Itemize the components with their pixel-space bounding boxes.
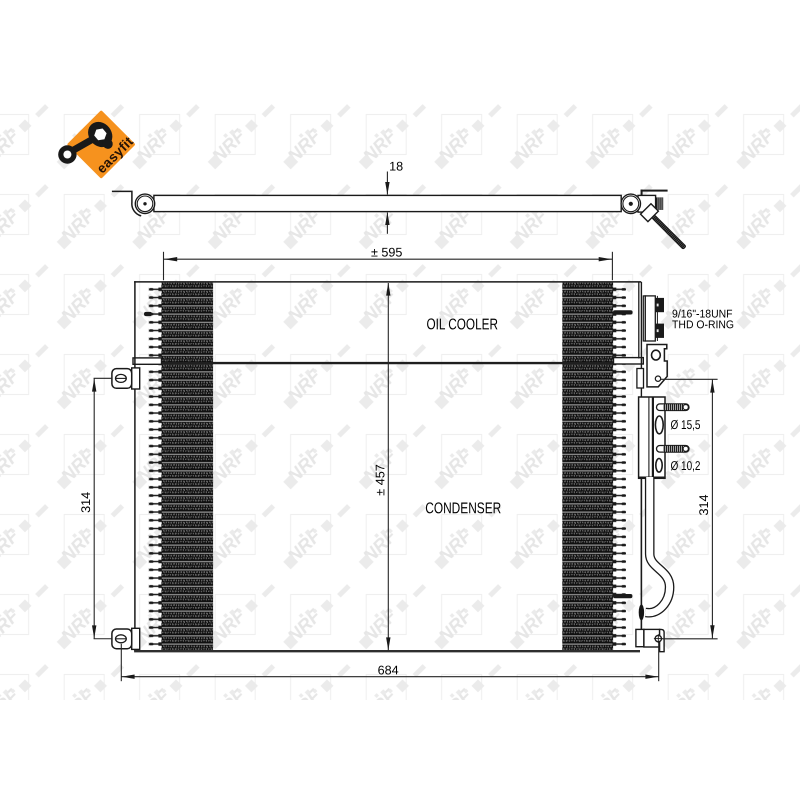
svg-text:Ø 10,2: Ø 10,2	[670, 458, 700, 473]
svg-text:± 595: ± 595	[371, 245, 402, 259]
svg-text:314: 314	[79, 492, 93, 513]
svg-text:± 457: ± 457	[373, 464, 387, 495]
svg-text:OIL COOLER: OIL COOLER	[426, 316, 498, 333]
svg-text:CONDENSER: CONDENSER	[425, 500, 501, 517]
svg-text:684: 684	[378, 663, 399, 677]
svg-text:314: 314	[697, 494, 711, 515]
svg-text:Ø 15,5: Ø 15,5	[670, 417, 700, 432]
svg-text:THD O-RING: THD O-RING	[672, 319, 734, 331]
svg-text:18: 18	[389, 159, 403, 173]
